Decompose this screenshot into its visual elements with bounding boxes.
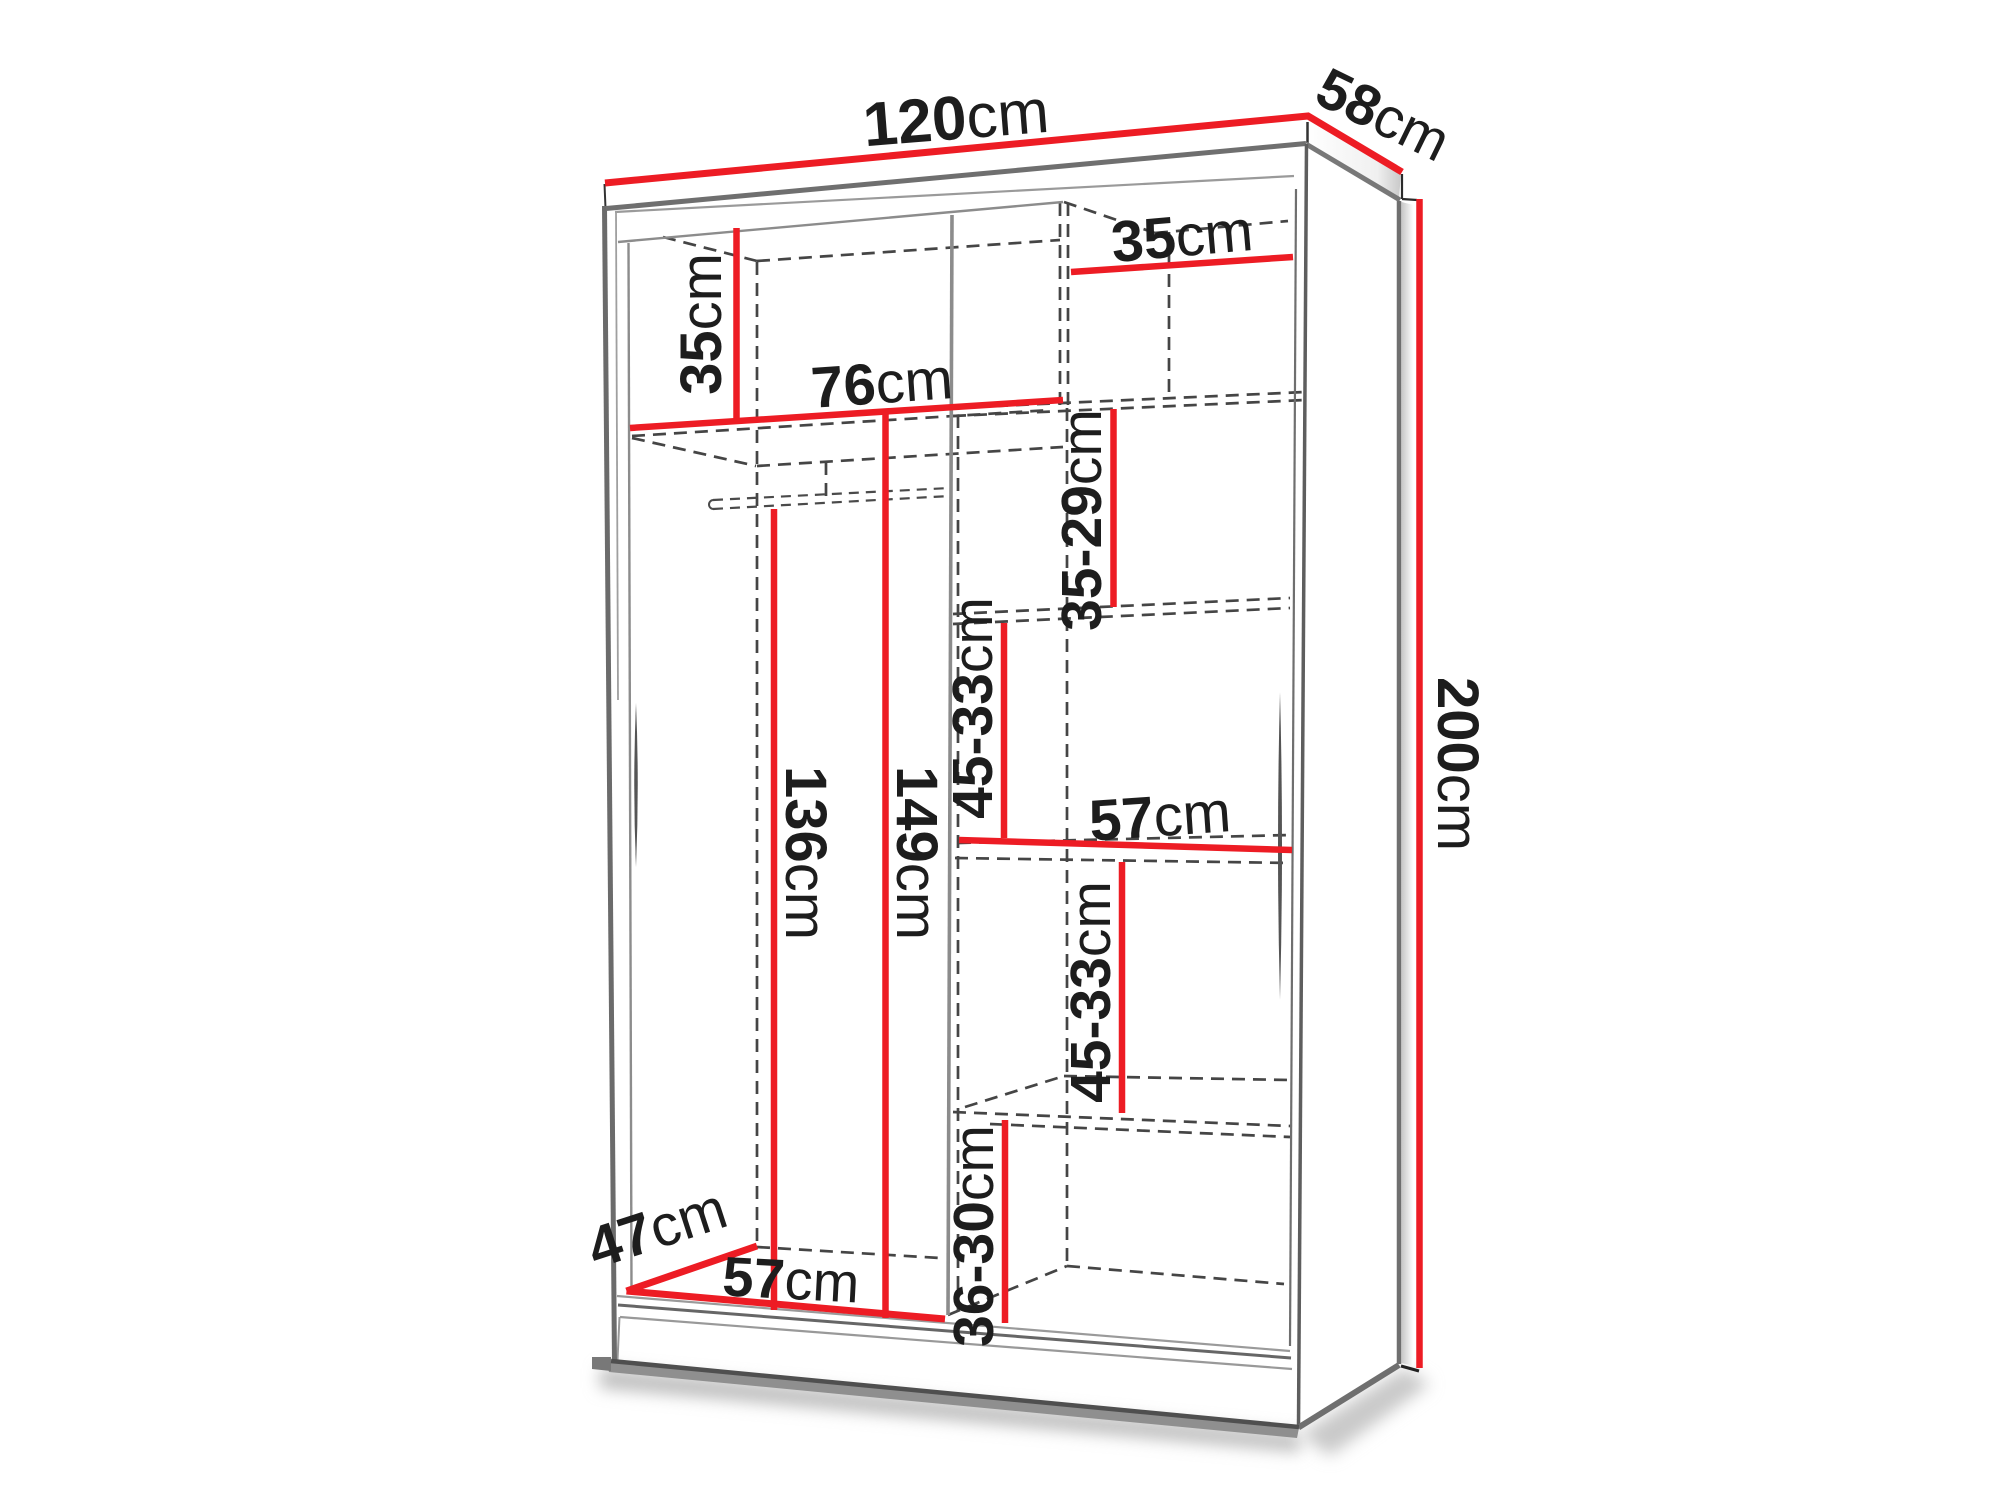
svg-text:200cm: 200cm — [1426, 677, 1491, 851]
svg-text:36-30cm: 36-30cm — [942, 1125, 1006, 1347]
svg-text:76cm: 76cm — [809, 346, 955, 421]
svg-text:136cm: 136cm — [774, 766, 839, 940]
svg-text:57cm: 57cm — [1087, 779, 1233, 854]
svg-text:45-33cm: 45-33cm — [1059, 881, 1123, 1103]
svg-text:57cm: 57cm — [721, 1244, 861, 1314]
svg-text:35-29cm: 35-29cm — [1050, 409, 1114, 631]
svg-text:45-33cm: 45-33cm — [941, 597, 1005, 819]
svg-text:149cm: 149cm — [885, 766, 950, 940]
svg-text:35cm: 35cm — [1109, 197, 1256, 274]
svg-text:120cm: 120cm — [861, 76, 1052, 159]
svg-text:35cm: 35cm — [669, 253, 734, 395]
